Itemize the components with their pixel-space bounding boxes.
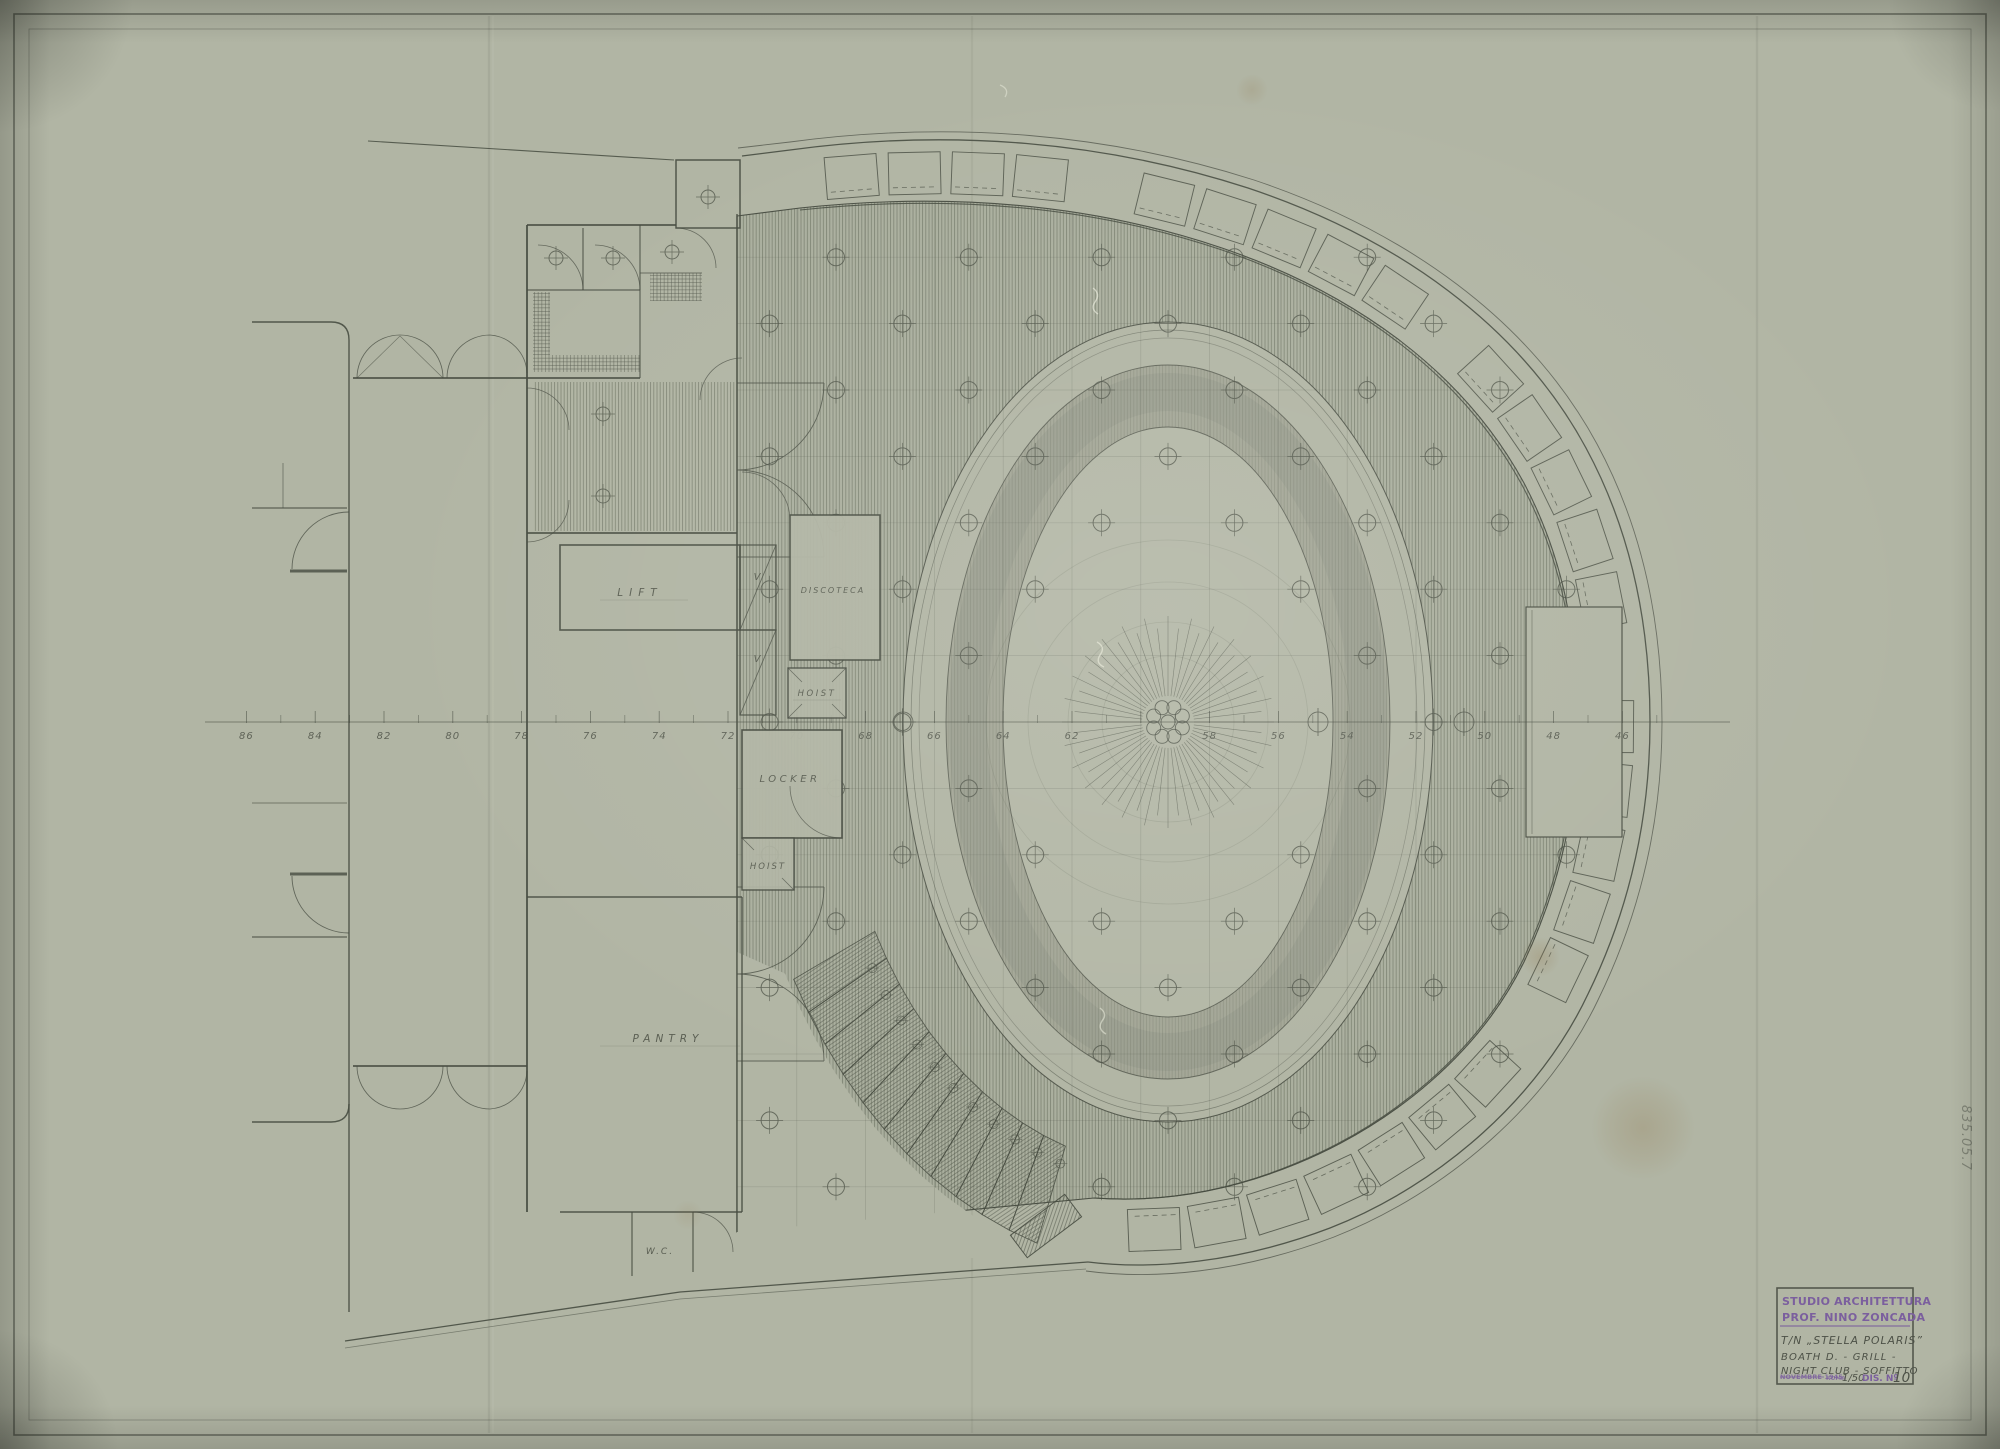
- label-discoteca: DISCOTECA: [801, 586, 865, 595]
- label-lift: LIFT: [617, 587, 662, 599]
- door-arc: [595, 245, 640, 290]
- duct-hatch: [550, 355, 640, 372]
- booth-outline: [1187, 1197, 1246, 1248]
- booth: [824, 153, 879, 199]
- slatted-lobby: [533, 382, 735, 531]
- title-block: STUDIO ARCHITETTURA PROF. NINO ZONCADA T…: [1777, 1288, 1931, 1386]
- door-arc: [676, 228, 716, 268]
- hull-bottom-line: [345, 1262, 1088, 1341]
- booth: [888, 152, 941, 195]
- frame-number: 84: [308, 731, 323, 742]
- light-fixture-symbol: [1487, 1041, 1514, 1068]
- booth-outline: [1554, 881, 1611, 944]
- booth-outline: [1358, 1122, 1424, 1185]
- booth-outline: [1455, 1040, 1521, 1107]
- hull-bottom-line-2: [345, 1269, 1086, 1348]
- double-door-arcs: [447, 335, 527, 378]
- booth-seat-edge: [893, 187, 937, 188]
- scratch: [1000, 85, 1007, 97]
- frame-number: 68: [858, 731, 873, 742]
- stain: [1236, 74, 1268, 106]
- forward-room-cluster: [527, 160, 742, 1232]
- booth-seat-edge: [1465, 372, 1495, 405]
- booth-seat-edge: [831, 189, 875, 193]
- light-fixture-symbol: [601, 246, 625, 270]
- booth-seat-edge: [1193, 1205, 1236, 1213]
- booth: [1557, 509, 1613, 572]
- blueprint-sheet: 8684828078767472706866646258565452504846: [0, 0, 2000, 1449]
- port-side-structures: [252, 322, 527, 1312]
- booth-outline: [1127, 1207, 1181, 1251]
- door-arc: [292, 512, 349, 569]
- ceiling-plan-drawing: 8684828078767472706866646258565452504846: [0, 0, 2000, 1449]
- booth-seat-edge: [1562, 887, 1576, 929]
- booth: [1134, 173, 1195, 226]
- block-b-corner: [252, 1104, 349, 1122]
- double-door-arcs: [357, 335, 443, 378]
- booth: [1252, 209, 1316, 268]
- booth-seat-edge: [1258, 243, 1299, 260]
- booth-outline: [1134, 173, 1195, 226]
- frame-number: 54: [1340, 731, 1355, 742]
- light-fixture-symbol: [544, 246, 568, 270]
- label-vent-1: V: [754, 572, 762, 583]
- booth: [1247, 1179, 1309, 1235]
- booth-outline: [1247, 1179, 1309, 1235]
- frame-number: 56: [1271, 731, 1286, 742]
- label-pantry: PANTRY: [633, 1033, 704, 1045]
- booth-outline: [1252, 209, 1316, 268]
- frame-number: 52: [1409, 731, 1424, 742]
- booth: [1362, 265, 1429, 329]
- light-fixture-symbol: [1354, 244, 1381, 271]
- booth-outline: [1409, 1084, 1476, 1150]
- drawing-number: 10: [1893, 1370, 1910, 1386]
- frame-number: 58: [1202, 731, 1217, 742]
- booth: [1127, 1207, 1181, 1251]
- booth-outline: [1557, 509, 1613, 572]
- label-vent-2: V: [754, 654, 762, 665]
- duct-hatch: [650, 273, 702, 301]
- light-fixture-symbol: [660, 240, 684, 264]
- booth-seat-edge: [1463, 1048, 1493, 1080]
- booth: [951, 152, 1005, 196]
- light-fixture-symbol: [1420, 1107, 1447, 1134]
- label-locker: LOCKER: [760, 774, 821, 785]
- booth: [1498, 395, 1562, 462]
- stain: [1520, 937, 1560, 977]
- frame-number: 46: [1615, 731, 1630, 742]
- booth: [1012, 155, 1068, 202]
- booth-outline: [951, 152, 1005, 196]
- booth-seat-edge: [955, 187, 999, 189]
- booth-outline: [1012, 155, 1068, 202]
- booth: [1187, 1197, 1246, 1248]
- frame-number: 66: [927, 731, 942, 742]
- studio-name: STUDIO ARCHITETTURA: [1782, 1295, 1931, 1308]
- booth: [1409, 1084, 1476, 1150]
- label-wc: W.C.: [646, 1247, 674, 1257]
- frame-number: 48: [1546, 731, 1561, 742]
- subject-line-1: BOATH D. - GRILL -: [1781, 1352, 1897, 1363]
- stain: [673, 1200, 703, 1230]
- architect-name: PROF. NINO ZONCADA: [1782, 1311, 1926, 1324]
- booth-outline: [888, 152, 941, 195]
- booth-seat-edge: [1017, 190, 1061, 195]
- frame-number: 64: [996, 731, 1011, 742]
- double-door-arcs: [357, 1066, 443, 1109]
- double-door-leaves: [357, 336, 443, 378]
- frame-number: 82: [377, 731, 392, 742]
- booth-seat-edge: [1539, 469, 1558, 509]
- hull-top-line: [368, 141, 674, 160]
- frame-number: 72: [721, 731, 736, 742]
- light-fixture-symbol: [696, 185, 720, 209]
- door-arc: [538, 245, 583, 290]
- light-fixture-symbol: [1420, 310, 1447, 337]
- frame-number: 74: [652, 731, 667, 742]
- booth-seat-edge: [1565, 524, 1579, 566]
- booth-seat-edge: [1132, 1215, 1176, 1217]
- frame-number: 50: [1477, 731, 1492, 742]
- booth-seat-edge: [1200, 223, 1242, 237]
- double-door-arcs: [447, 1066, 527, 1109]
- booth-outline: [1194, 189, 1256, 245]
- light-fixture-symbol: [1354, 1173, 1381, 1200]
- booth: [1194, 189, 1256, 245]
- club-room: [315, 152, 1691, 1265]
- door-arc: [292, 876, 349, 933]
- booth-seat-edge: [1315, 267, 1354, 288]
- booth: [1455, 1040, 1521, 1107]
- corridor-wall: [252, 322, 349, 1312]
- frame-number: 76: [583, 731, 598, 742]
- stain: [1591, 1076, 1695, 1180]
- frame-number: 62: [1065, 731, 1080, 742]
- booth-outline: [1531, 450, 1592, 515]
- booth-outline: [1498, 395, 1562, 462]
- booth-seat-edge: [1252, 1187, 1294, 1200]
- booth-seat-edge: [1310, 1162, 1350, 1181]
- booth: [1531, 450, 1592, 515]
- booth-outline: [824, 153, 879, 199]
- frame-number: 80: [445, 731, 460, 742]
- booth: [1554, 881, 1611, 944]
- frame-number: 86: [239, 731, 254, 742]
- vessel-name: T/N „STELLA POLARIS”: [1781, 1334, 1923, 1347]
- booth-seat-edge: [1416, 1092, 1450, 1120]
- booth: [1358, 1122, 1424, 1185]
- booth-outline: [1362, 265, 1429, 329]
- duct-hatch: [533, 292, 550, 372]
- archive-number: 835.05.7: [1958, 1105, 1973, 1171]
- label-hoist-upper: HOIST: [798, 689, 837, 699]
- label-hoist-lower: HOIST: [750, 862, 786, 872]
